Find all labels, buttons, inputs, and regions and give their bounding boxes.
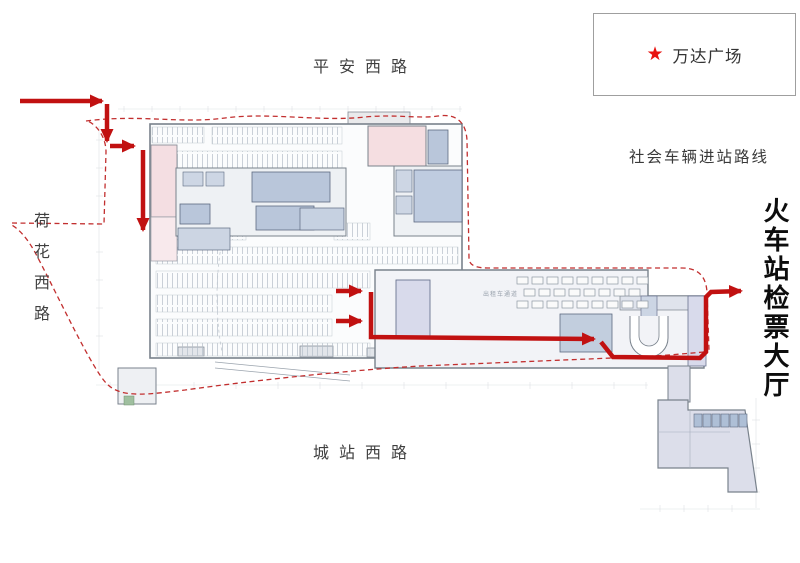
road-label-bottom: 城站西路 xyxy=(313,439,417,463)
road-label-top: 平安西路 xyxy=(313,53,417,77)
star-icon: ★ xyxy=(646,45,663,64)
route-description-label: 社会车辆进站路线 xyxy=(629,145,769,167)
legend: ★ 万达广场 xyxy=(593,13,796,96)
annex-building xyxy=(658,366,757,492)
destination-label: 火车站检票大厅 xyxy=(757,197,794,400)
legend-label: 万达广场 xyxy=(673,43,743,67)
station-route-map: 平安西路 荷花西路 城站西路 社会车辆进站路线 火车站检票大厅 出租车通道 ★ … xyxy=(0,0,800,563)
taxi-lane-label: 出租车通道 xyxy=(483,289,518,298)
u-ramp xyxy=(630,316,668,357)
road-label-left: 荷花西路 xyxy=(27,212,51,336)
